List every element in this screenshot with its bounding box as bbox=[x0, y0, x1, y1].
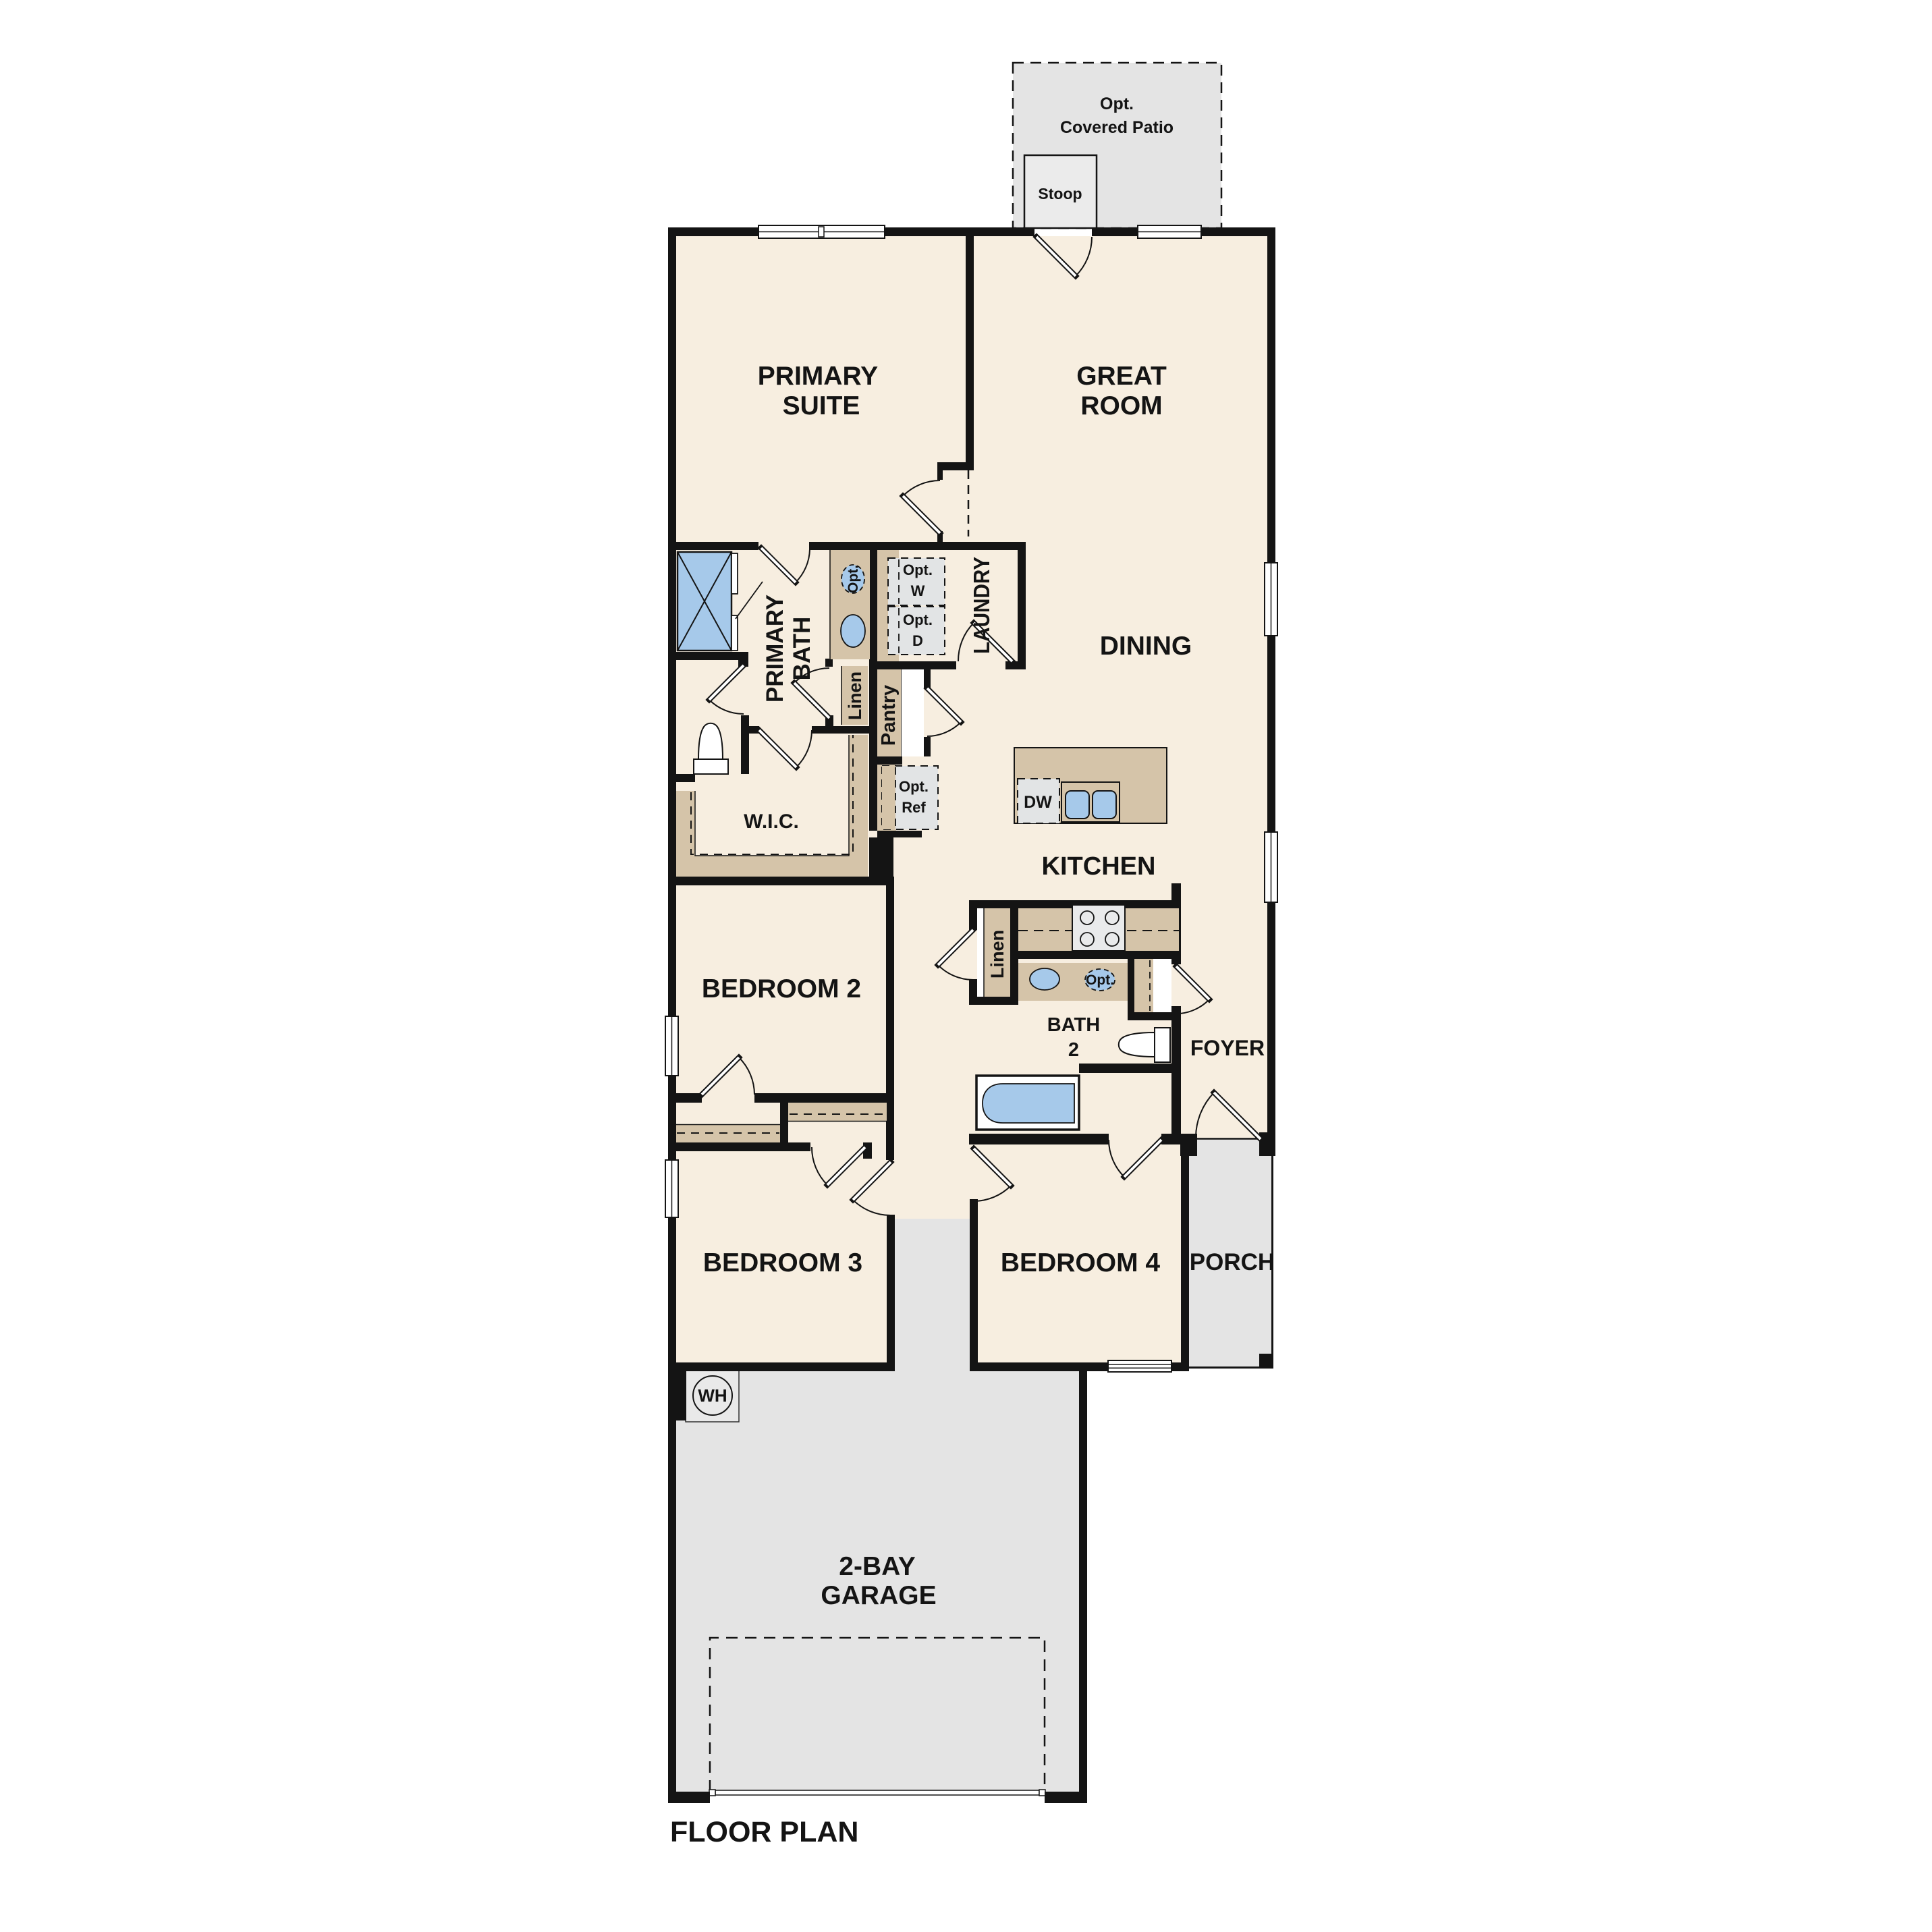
svg-text:Linen: Linen bbox=[987, 930, 1008, 978]
svg-text:BEDROOM 3: BEDROOM 3 bbox=[703, 1248, 862, 1277]
svg-text:Opt.: Opt. bbox=[846, 565, 861, 593]
svg-text:BATH: BATH bbox=[1047, 1014, 1100, 1036]
svg-text:Opt.: Opt. bbox=[903, 561, 933, 578]
svg-text:W.I.C.: W.I.C. bbox=[744, 810, 799, 833]
svg-text:Covered Patio: Covered Patio bbox=[1060, 118, 1174, 137]
svg-text:Opt.: Opt. bbox=[1086, 972, 1114, 988]
svg-text:BATH: BATH bbox=[789, 617, 815, 681]
svg-text:PRIMARY: PRIMARY bbox=[762, 595, 788, 702]
svg-text:BEDROOM 4: BEDROOM 4 bbox=[1001, 1248, 1161, 1277]
svg-text:LAUNDRY: LAUNDRY bbox=[969, 557, 994, 654]
svg-text:W: W bbox=[911, 582, 925, 599]
svg-text:ROOM: ROOM bbox=[1080, 391, 1162, 420]
svg-text:Opt.: Opt. bbox=[903, 611, 933, 628]
svg-text:Linen: Linen bbox=[845, 671, 865, 720]
svg-text:2: 2 bbox=[1068, 1039, 1079, 1061]
svg-text:WH: WH bbox=[698, 1385, 727, 1406]
svg-text:FOYER: FOYER bbox=[1190, 1036, 1265, 1060]
svg-text:PORCH: PORCH bbox=[1190, 1249, 1275, 1275]
svg-text:Opt.: Opt. bbox=[1100, 94, 1134, 113]
svg-text:Ref: Ref bbox=[902, 799, 926, 816]
svg-text:KITCHEN: KITCHEN bbox=[1042, 852, 1156, 881]
svg-text:Opt.: Opt. bbox=[899, 778, 929, 795]
svg-text:FLOOR PLAN: FLOOR PLAN bbox=[670, 1816, 858, 1848]
svg-text:Pantry: Pantry bbox=[878, 685, 900, 746]
svg-text:2-BAY: 2-BAY bbox=[839, 1552, 915, 1581]
svg-text:GREAT: GREAT bbox=[1076, 362, 1167, 391]
svg-text:PRIMARY: PRIMARY bbox=[758, 362, 878, 391]
svg-text:SUITE: SUITE bbox=[783, 391, 860, 420]
svg-text:DW: DW bbox=[1024, 793, 1052, 812]
svg-text:D: D bbox=[912, 632, 923, 649]
svg-text:BEDROOM 2: BEDROOM 2 bbox=[702, 974, 861, 1003]
svg-text:GARAGE: GARAGE bbox=[821, 1581, 936, 1610]
svg-text:DINING: DINING bbox=[1100, 632, 1192, 661]
svg-text:Stoop: Stoop bbox=[1038, 185, 1082, 202]
